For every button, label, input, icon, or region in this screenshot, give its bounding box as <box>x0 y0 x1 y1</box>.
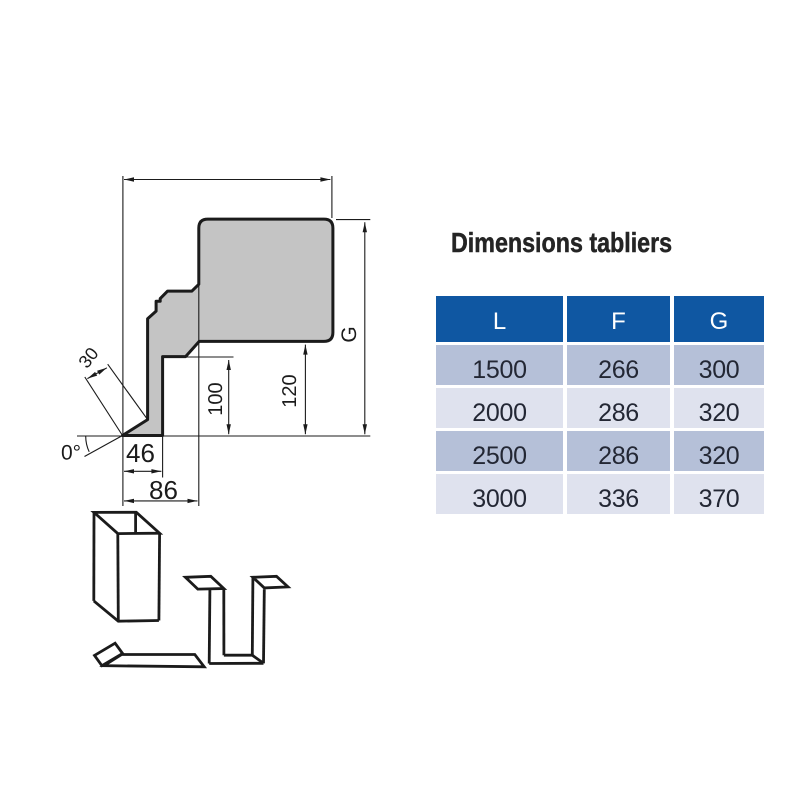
svg-text:86: 86 <box>149 475 178 505</box>
svg-text:30: 30 <box>74 344 102 372</box>
svg-text:120: 120 <box>279 374 301 407</box>
svg-text:46: 46 <box>126 438 155 468</box>
svg-text:G: G <box>338 326 361 342</box>
svg-text:0°: 0° <box>61 442 81 465</box>
svg-text:100: 100 <box>205 382 227 415</box>
